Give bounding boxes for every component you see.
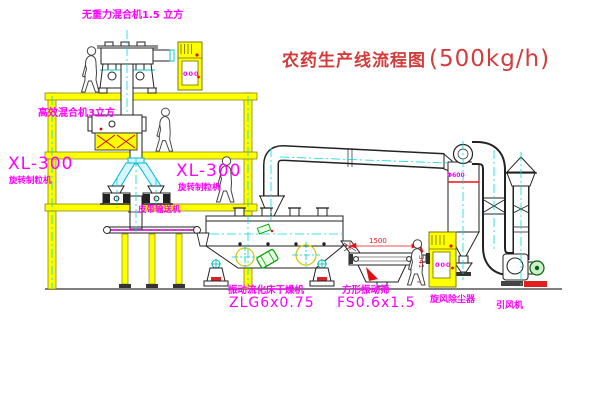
title-capacity: (500kg/h) (429, 46, 550, 72)
label-granulator-right-model: XL-300 (176, 163, 241, 180)
label-screen-model: FS0.6x1.5 (337, 296, 416, 310)
label-dryer-model: ZLG6x0.75 (229, 296, 315, 310)
label-gravity-mixer: 无重力混合机1.5 立方 (82, 11, 183, 21)
cabinet-display-cyclone: 000 (435, 262, 452, 269)
label-cyclone: 旋风除尘器 (430, 296, 475, 305)
cad-process-flow-drawing: 农药生产线流程图 (500kg/h) 无重力混合机1.5 立方 高效混合机3立方… (0, 0, 600, 403)
label-granulator-left-name: 旋转制粒机 (9, 177, 52, 186)
label-high-eff-mixer: 高效混合机3立方 (38, 109, 115, 119)
belt-conveyor-icon (104, 227, 210, 289)
granulator-right-icon (140, 186, 173, 204)
person-icon (156, 108, 173, 151)
granulator-left-icon (100, 186, 133, 204)
gravity-free-mixer-icon (97, 42, 174, 115)
dim-cyclone-mark: Φ600 (447, 173, 465, 179)
label-belt-conveyor: 皮带输送机 (138, 206, 181, 215)
label-granulator-right-name: 旋转制粒机 (178, 184, 221, 193)
dim-screen-length: 1500 (369, 238, 387, 245)
title-text: 农药生产线流程图 (282, 46, 426, 71)
cabinet-display-top: 000 (183, 71, 200, 78)
label-granulator-left-model: XL-300 (8, 156, 73, 173)
control-cabinet-top-icon (178, 42, 202, 90)
y-chute-icon (112, 158, 161, 186)
person-icon (82, 47, 100, 92)
drawing-title: 农药生产线流程图 (500kg/h) (282, 46, 550, 72)
fan-icon (501, 254, 547, 287)
control-cabinet-cyclone-icon (429, 232, 456, 287)
label-fan: 引风机 (496, 302, 523, 311)
dim-screen-height: 341 (417, 255, 424, 268)
